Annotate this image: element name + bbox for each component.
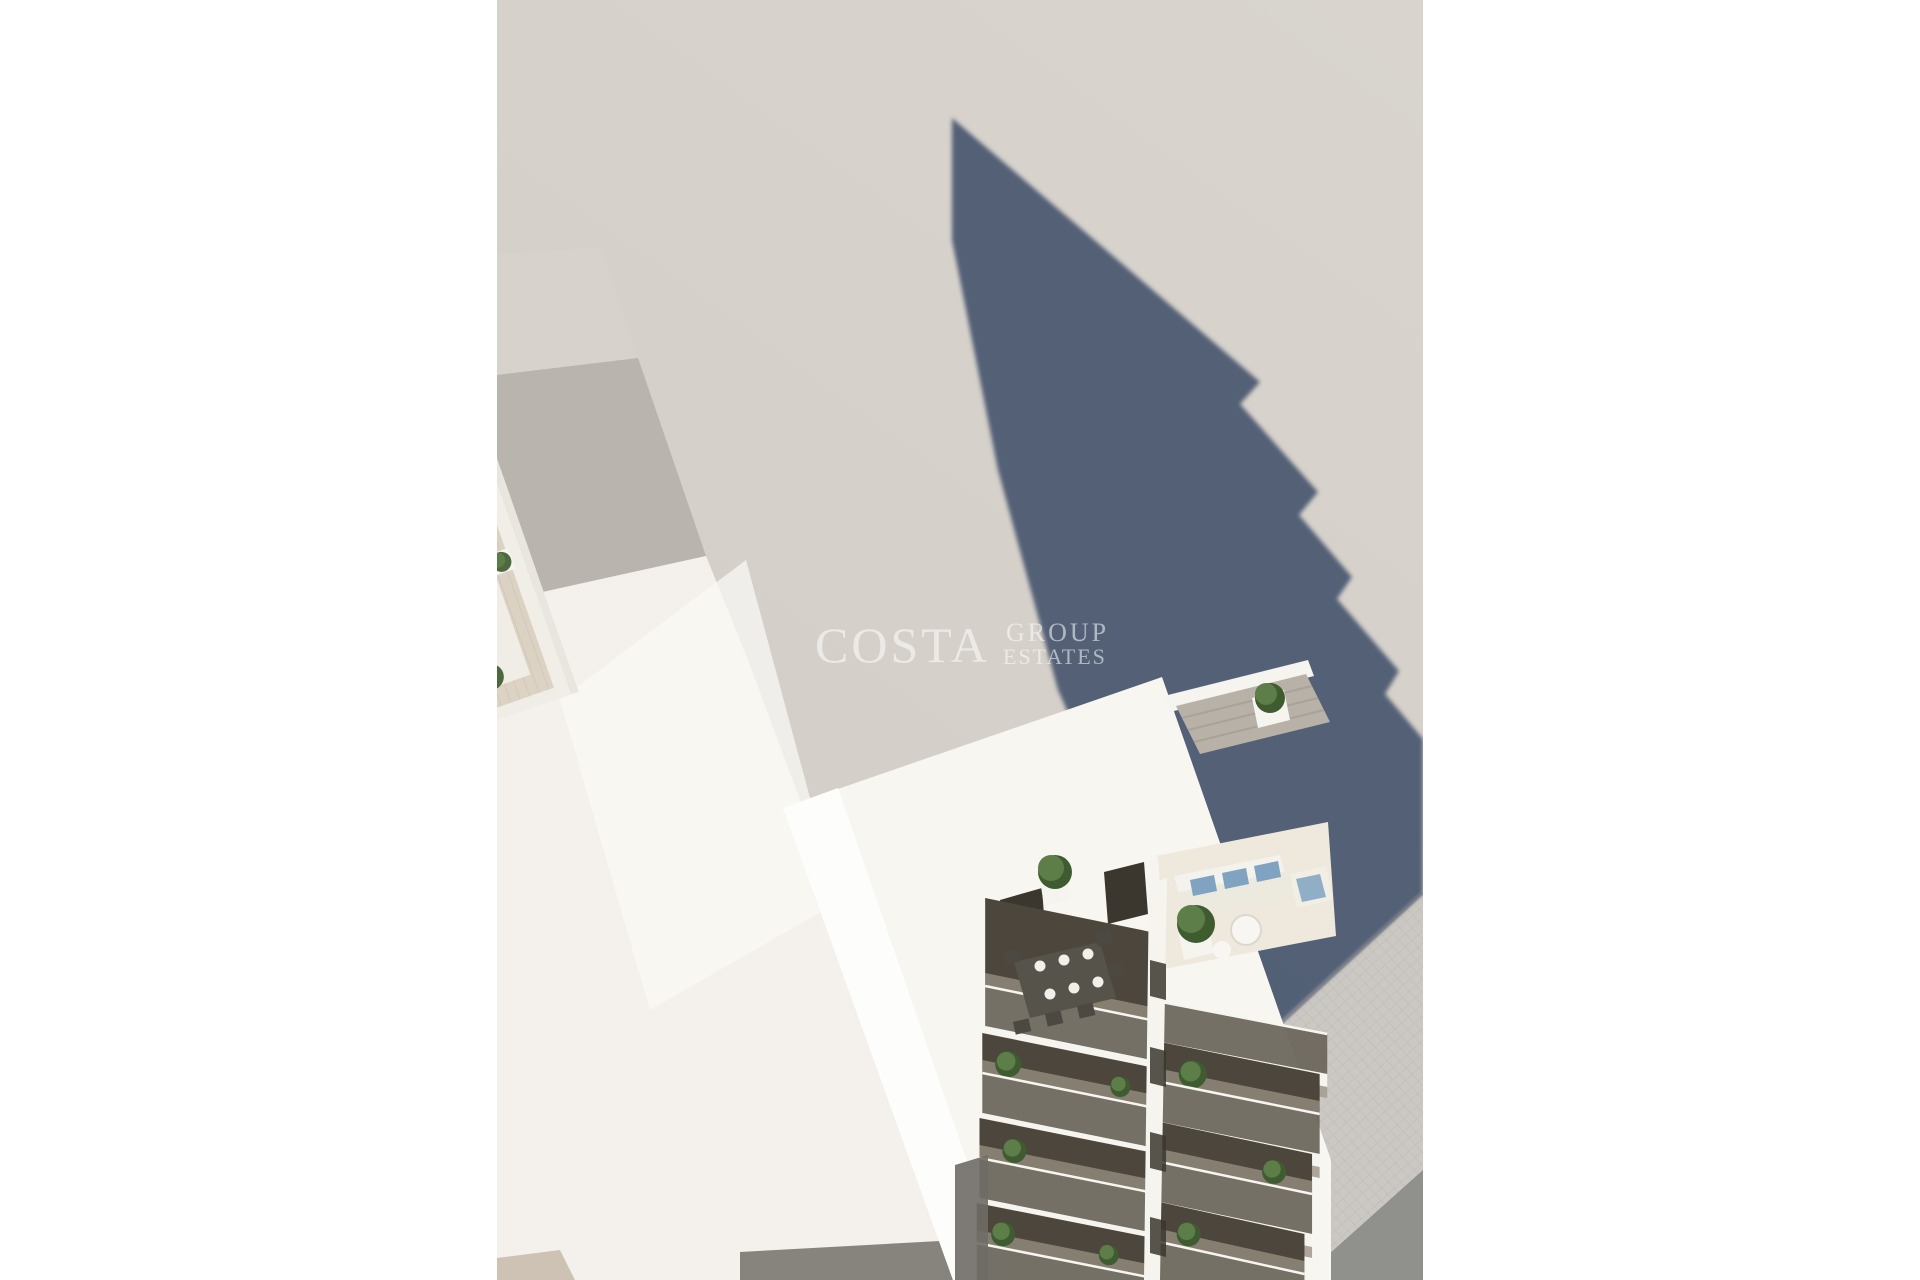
- pier-window: [1150, 1217, 1166, 1257]
- tree: [1255, 683, 1277, 705]
- watermark-line3: ESTATES: [1003, 644, 1107, 669]
- pier-window: [1150, 1132, 1166, 1172]
- watermark-line2: GROUP: [1006, 618, 1109, 647]
- tree: [1038, 855, 1064, 881]
- recessed-door: [1104, 862, 1148, 924]
- balcony-column-right: [1160, 1002, 1328, 1280]
- render-page: COSTA GROUP ESTATES: [0, 0, 1920, 1280]
- round-table: [1231, 915, 1261, 945]
- watermark-line1: COSTA: [815, 617, 990, 673]
- pier-window: [1150, 960, 1166, 1000]
- ottoman: [1213, 941, 1231, 959]
- pier-window: [1150, 1047, 1166, 1087]
- building-gap: [955, 1155, 988, 1280]
- tree: [1177, 905, 1205, 933]
- render-image: COSTA GROUP ESTATES: [0, 0, 1920, 1280]
- watermark: COSTA GROUP ESTATES: [815, 617, 1109, 673]
